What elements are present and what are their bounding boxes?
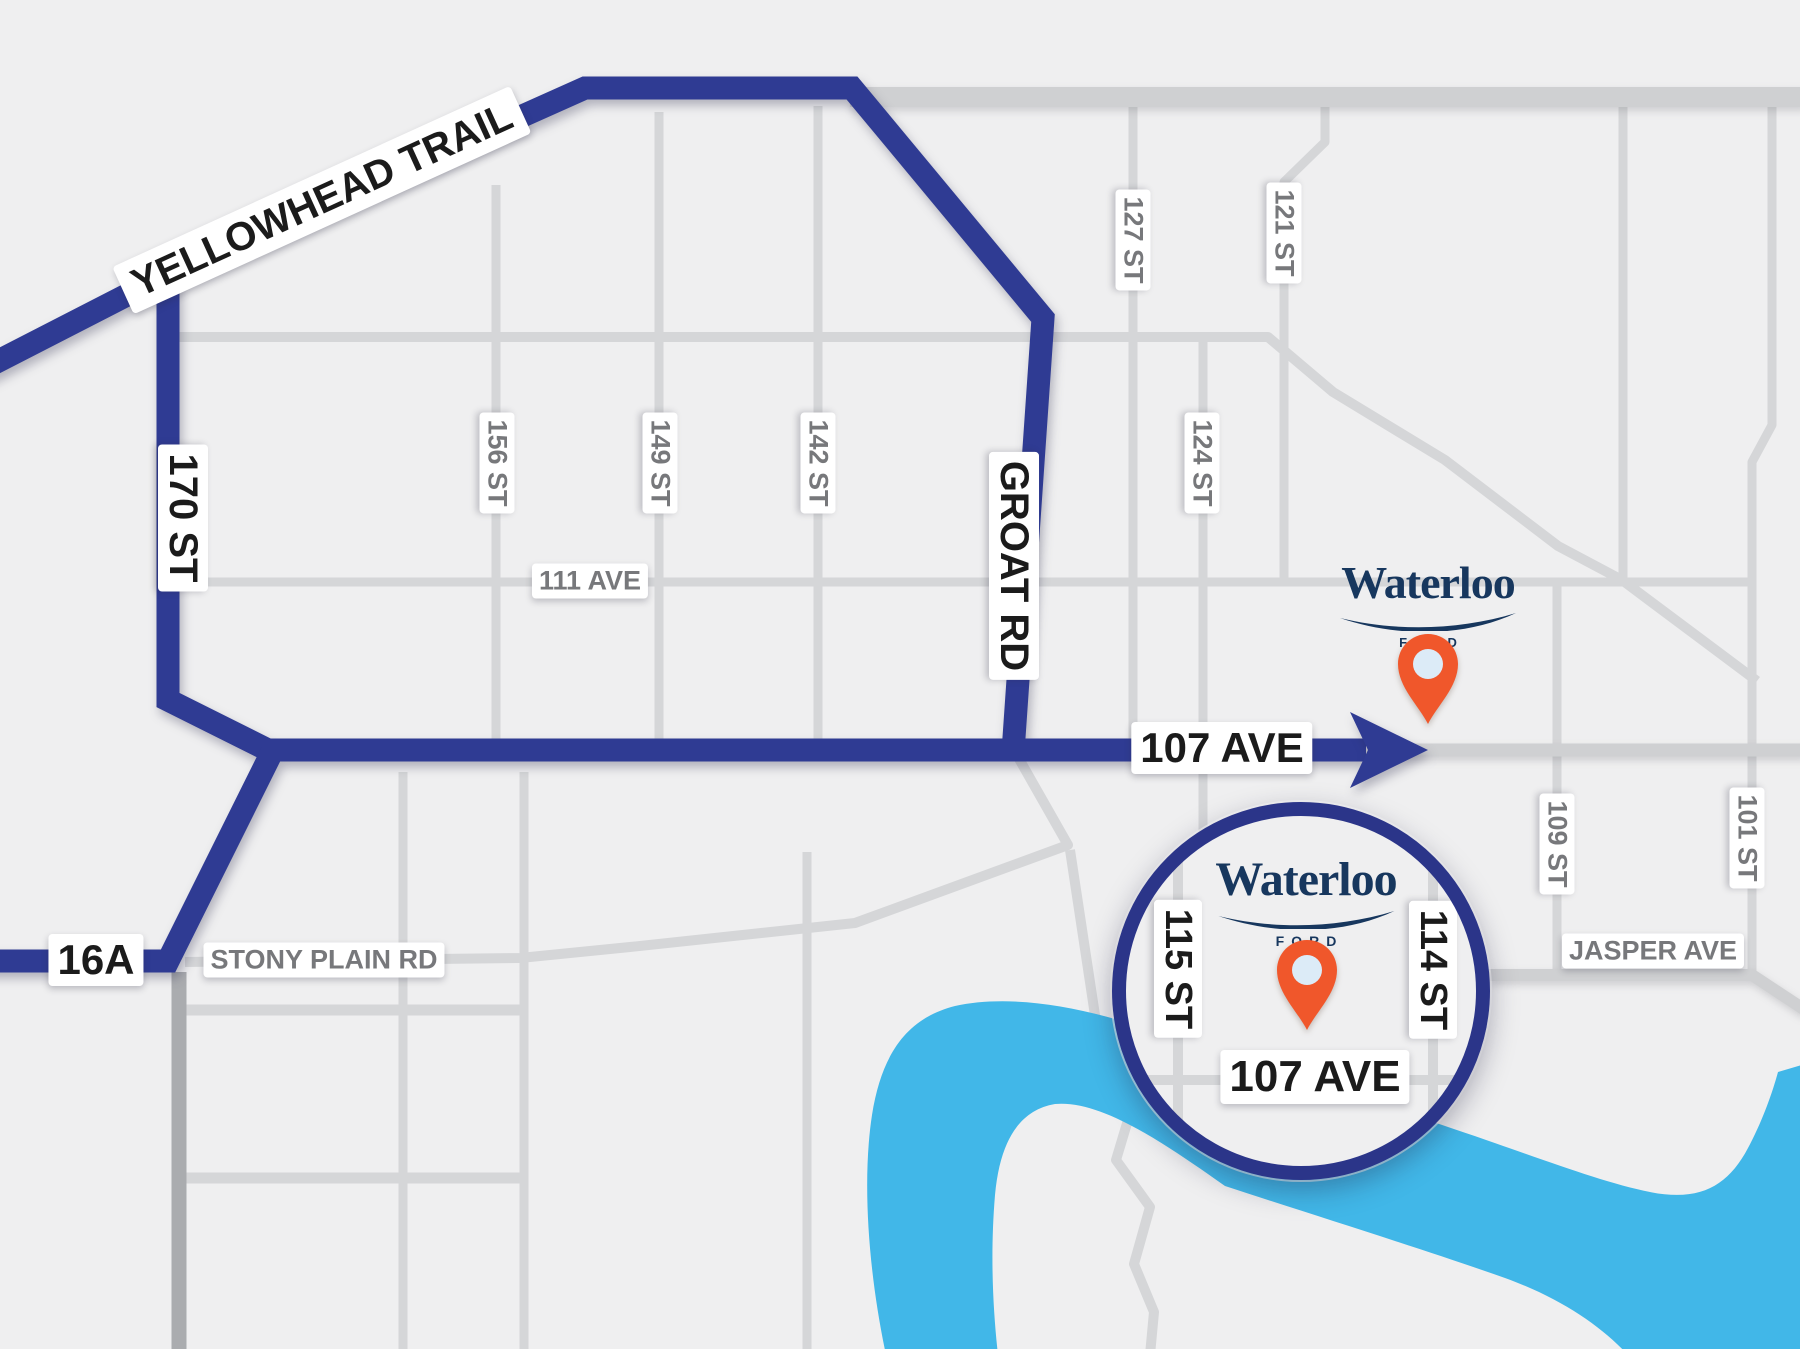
inset-label-115-st: 115 ST [1154, 900, 1202, 1038]
label-124-st: 124 ST [1185, 412, 1220, 513]
label-149-st: 149 ST [643, 412, 678, 513]
label-170-st: 170 ST [158, 445, 208, 592]
label-16a: 16A [48, 934, 143, 986]
label-107-ave: 107 AVE [1131, 722, 1312, 774]
map-canvas: Waterloo FORD YELLOWHEAD TRAIL 170 ST GR… [0, 0, 1800, 1349]
inset-label-114-st: 114 ST [1409, 901, 1457, 1039]
inset-dealer-logo-name: Waterloo [1215, 852, 1396, 907]
logo-swoosh-icon [1338, 611, 1518, 631]
inset-logo-swoosh-icon [1216, 909, 1396, 929]
label-127-st: 127 ST [1116, 189, 1151, 290]
label-142-st: 142 ST [801, 412, 836, 513]
inset-label-107-ave: 107 AVE [1220, 1050, 1409, 1104]
route-yellowhead-groat [0, 88, 1043, 752]
label-111-ave: 111 AVE [532, 564, 648, 599]
dealer-logo-name: Waterloo [1338, 556, 1518, 609]
label-156-st: 156 ST [480, 412, 515, 513]
label-jasper-ave: JASPER AVE [1562, 934, 1744, 969]
label-stony-plain-rd: STONY PLAIN RD [203, 943, 444, 978]
inset-dealer-logo: Waterloo FORD [1215, 852, 1396, 949]
inset-location-pin-icon [1277, 940, 1337, 1030]
label-101-st: 101 ST [1730, 787, 1765, 888]
label-109-st: 109 ST [1540, 793, 1575, 894]
label-groat-rd: GROAT RD [989, 452, 1039, 680]
route-16a [0, 752, 272, 961]
label-121-st: 121 ST [1267, 182, 1302, 283]
location-pin-icon [1398, 634, 1458, 724]
